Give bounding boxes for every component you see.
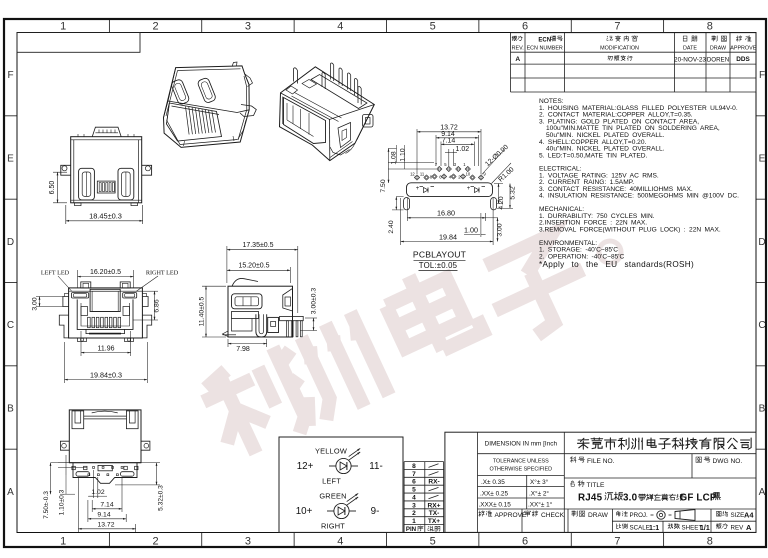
svg-text:4: 4 [337,21,343,33]
svg-text:17.35±0.5: 17.35±0.5 [242,242,273,249]
svg-text:8: 8 [412,463,416,470]
svg-text:A: A [746,523,752,532]
svg-text:11-: 11- [369,461,382,472]
svg-text:12: 12 [410,171,415,176]
svg-text:16.20±0.5: 16.20±0.5 [90,269,121,276]
svg-text:RIGHT LED: RIGHT LED [146,270,179,277]
svg-text:19.84: 19.84 [439,232,457,241]
svg-text:9.14: 9.14 [97,512,110,519]
svg-text:5.32±0.3: 5.32±0.3 [157,485,164,511]
svg-text:7.14: 7.14 [442,137,456,144]
svg-text:1: 1 [60,536,66,548]
svg-text:5: 5 [412,487,416,494]
svg-text:B: B [7,404,14,415]
svg-text:11: 11 [420,171,425,176]
svg-text:6: 6 [522,536,528,548]
svg-text:PIN: PIN [406,526,417,533]
svg-text:PCBLAYOUT: PCBLAYOUT [413,250,467,260]
svg-text:.XXX± 0.15: .XXX± 0.15 [479,501,512,508]
svg-text:3.REMOVAL FORCE(WITHOUT PLUG: 3.REMOVAL FORCE(WITHOUT PLUG LOCK) : 22N… [539,226,721,233]
svg-text:TOLERANCE UNLESS: TOLERANCE UNLESS [493,459,549,465]
svg-text:C: C [7,320,14,331]
svg-text:DATE: DATE [683,46,697,52]
svg-text:TOL:±0.05: TOL:±0.05 [419,261,458,270]
svg-text:SCALE: SCALE [630,525,650,532]
svg-text:E: E [7,154,14,165]
svg-text:1: 1 [412,518,416,525]
svg-text:X°± 3°: X°± 3° [530,478,549,486]
svg-text:E: E [759,154,766,165]
svg-text:13.72: 13.72 [97,522,114,529]
svg-text:RX+: RX+ [427,502,440,509]
svg-text:LEFT: LEFT [322,477,341,486]
svg-text:GF LCP: GF LCP [680,493,717,504]
svg-text:6.50: 6.50 [49,181,56,195]
svg-text:A: A [759,487,766,498]
svg-text:DOREN: DOREN [707,56,729,63]
svg-text:2.40: 2.40 [388,220,395,233]
svg-text:10+: 10+ [296,506,313,517]
svg-text:.XX°± 1°: .XX°± 1° [528,500,553,508]
svg-text:5: 5 [430,536,436,548]
svg-text:OTHERWISE SPECIFIED: OTHERWISE SPECIFIED [490,467,553,473]
svg-text:3.0: 3.0 [623,493,638,504]
svg-text:GREEN: GREEN [319,492,346,501]
svg-text:A: A [7,487,14,498]
svg-text:REV.: REV. [512,46,524,52]
svg-text:A4: A4 [744,510,754,519]
svg-text:4: 4 [412,494,416,501]
svg-text:4. INSULATION RESISTANCE: 5: 4. INSULATION RESISTANCE: 500MEGOHMS MIN… [539,193,739,200]
svg-text:1.02: 1.02 [456,146,470,153]
svg-text:6.86: 6.86 [154,299,161,312]
svg-text:7.14: 7.14 [100,502,113,509]
svg-text:TITLE: TITLE [587,482,606,489]
svg-text:7: 7 [614,21,620,33]
svg-text:7: 7 [614,536,620,548]
svg-text:1.02: 1.02 [91,489,104,496]
svg-text:7: 7 [412,471,416,478]
svg-text:.X± 0.35: .X± 0.35 [481,479,505,486]
svg-text:3.00: 3.00 [31,297,38,310]
svg-text:1.10: 1.10 [400,148,407,161]
svg-text:C: C [758,320,765,331]
svg-text:18.45±0.3: 18.45±0.3 [89,211,122,220]
svg-text:DWG NO.: DWG NO. [713,458,743,465]
svg-text:B: B [759,404,766,415]
svg-text:FILE NO.: FILE NO. [587,458,615,465]
svg-text:5.32: 5.32 [509,186,516,199]
svg-text:7.50: 7.50 [380,179,387,192]
svg-text:TX-: TX- [429,510,440,517]
svg-text:TX+: TX+ [428,518,440,525]
svg-text:3.00: 3.00 [497,223,504,236]
svg-text:APPROVE: APPROVE [730,46,756,52]
svg-text:ECN NUMBER: ECN NUMBER [527,46,563,52]
svg-text:RX-: RX- [428,479,439,486]
svg-text:1/1: 1/1 [700,525,710,532]
svg-text:5. LED:T=0.50,MATE TIN PLAT: 5. LED:T=0.50,MATE TIN PLATED. [539,152,647,159]
svg-text:3: 3 [245,21,251,33]
svg-text:1: 1 [60,21,66,33]
svg-text:DRAW: DRAW [588,512,609,519]
svg-text:16.80: 16.80 [437,209,455,218]
svg-text:F: F [759,70,765,81]
svg-text:YELLOW: YELLOW [315,447,347,456]
svg-text:10: 10 [466,171,471,176]
svg-text:6: 6 [412,479,416,486]
svg-text:DDS: DDS [736,56,750,63]
svg-text:12+: 12+ [297,461,314,472]
svg-text:PROJ.: PROJ. [630,512,649,519]
svg-text:REV: REV [731,525,745,532]
svg-text:RIGHT: RIGHT [321,522,345,531]
svg-text:DIMENSION IN mm [Inch: DIMENSION IN mm [Inch [485,441,558,448]
svg-text:8: 8 [707,536,713,548]
svg-text:2: 2 [153,536,159,548]
svg-text:+: + [467,186,471,192]
svg-text:6: 6 [522,21,528,33]
svg-text:7.98: 7.98 [236,346,250,353]
svg-text:4.20: 4.20 [498,196,505,209]
svg-text:3.00±0.3: 3.00±0.3 [311,288,318,315]
svg-text:1.00: 1.00 [464,225,478,234]
svg-text:1.10±0.3: 1.10±0.3 [58,489,65,515]
svg-text:MODIFICATION: MODIFICATION [600,46,639,52]
svg-text:19.84±0.3: 19.84±0.3 [90,370,122,379]
svg-text:15.20±0.5: 15.20±0.5 [238,263,269,270]
svg-text:+: + [416,186,420,192]
svg-text:8: 8 [707,21,713,33]
svg-text:7.50±-0.3: 7.50±-0.3 [43,491,50,519]
svg-text:1:1: 1:1 [649,525,659,532]
svg-text:5: 5 [430,21,436,33]
svg-text:20-NOV-23: 20-NOV-23 [674,56,706,63]
svg-text:3: 3 [245,536,251,548]
svg-text:2: 2 [153,21,159,33]
svg-text:9-: 9- [371,506,380,517]
svg-text:3: 3 [412,502,416,509]
svg-text:11.40±0.5: 11.40±0.5 [198,296,205,326]
svg-text:D: D [7,237,14,248]
svg-text:ECN: ECN [538,38,551,44]
svg-text:F: F [7,70,13,81]
svg-text:11.96: 11.96 [98,345,115,352]
svg-text:DRAW: DRAW [710,46,727,52]
svg-text:APPROVE: APPROVE [495,512,527,519]
svg-text:SIZE: SIZE [731,512,745,519]
svg-text:.X°± 2°: .X°± 2° [529,489,549,497]
svg-text:LEFT LED: LEFT LED [41,270,70,277]
svg-text:2: 2 [412,510,416,517]
svg-text:D: D [758,237,765,248]
svg-text:4: 4 [337,536,343,548]
svg-text:RJ45: RJ45 [578,493,603,504]
svg-text:A: A [515,56,520,63]
svg-text:.XX± 0.25: .XX± 0.25 [480,490,508,497]
svg-text:CHECK: CHECK [541,512,565,519]
svg-text:*Apply to the EU standards(ROS: *Apply to the EU standards(ROSH) [539,260,694,269]
